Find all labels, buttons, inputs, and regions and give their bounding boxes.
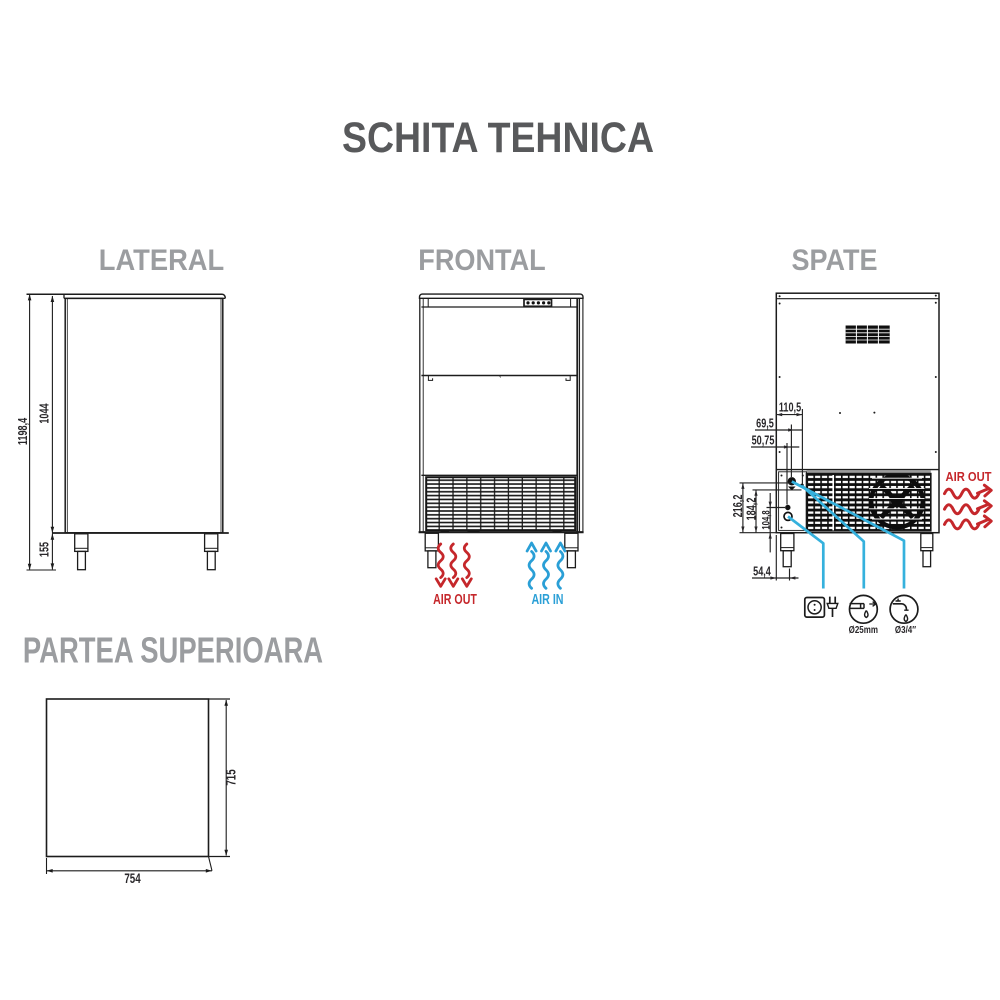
svg-text:AIR IN: AIR IN [531,590,563,607]
svg-text:Ø25mm: Ø25mm [849,624,878,635]
svg-text:1198,4: 1198,4 [17,417,31,445]
svg-text:LATERAL: LATERAL [99,244,224,277]
svg-text:54,4: 54,4 [753,565,771,579]
svg-text:216,2: 216,2 [732,495,746,518]
svg-text:715: 715 [223,769,239,786]
svg-text:AIR OUT: AIR OUT [433,590,477,607]
svg-text:PARTEA SUPERIOARA: PARTEA SUPERIOARA [23,630,323,670]
svg-text:AIR OUT: AIR OUT [945,469,992,484]
svg-text:SCHITA TEHNICA: SCHITA TEHNICA [342,113,654,162]
svg-text:Ø3/4″: Ø3/4″ [895,624,917,635]
svg-text:1044: 1044 [38,403,52,424]
svg-text:754: 754 [124,870,141,886]
svg-text:104,8: 104,8 [760,510,773,529]
svg-text:184,2: 184,2 [745,498,759,521]
svg-text:110,5: 110,5 [779,401,801,415]
svg-text:SPATE: SPATE [792,244,878,278]
svg-text:50,75: 50,75 [752,434,775,448]
svg-text:155: 155 [38,542,52,557]
svg-text:69,5: 69,5 [756,417,774,431]
svg-text:FRONTAL: FRONTAL [418,244,545,278]
